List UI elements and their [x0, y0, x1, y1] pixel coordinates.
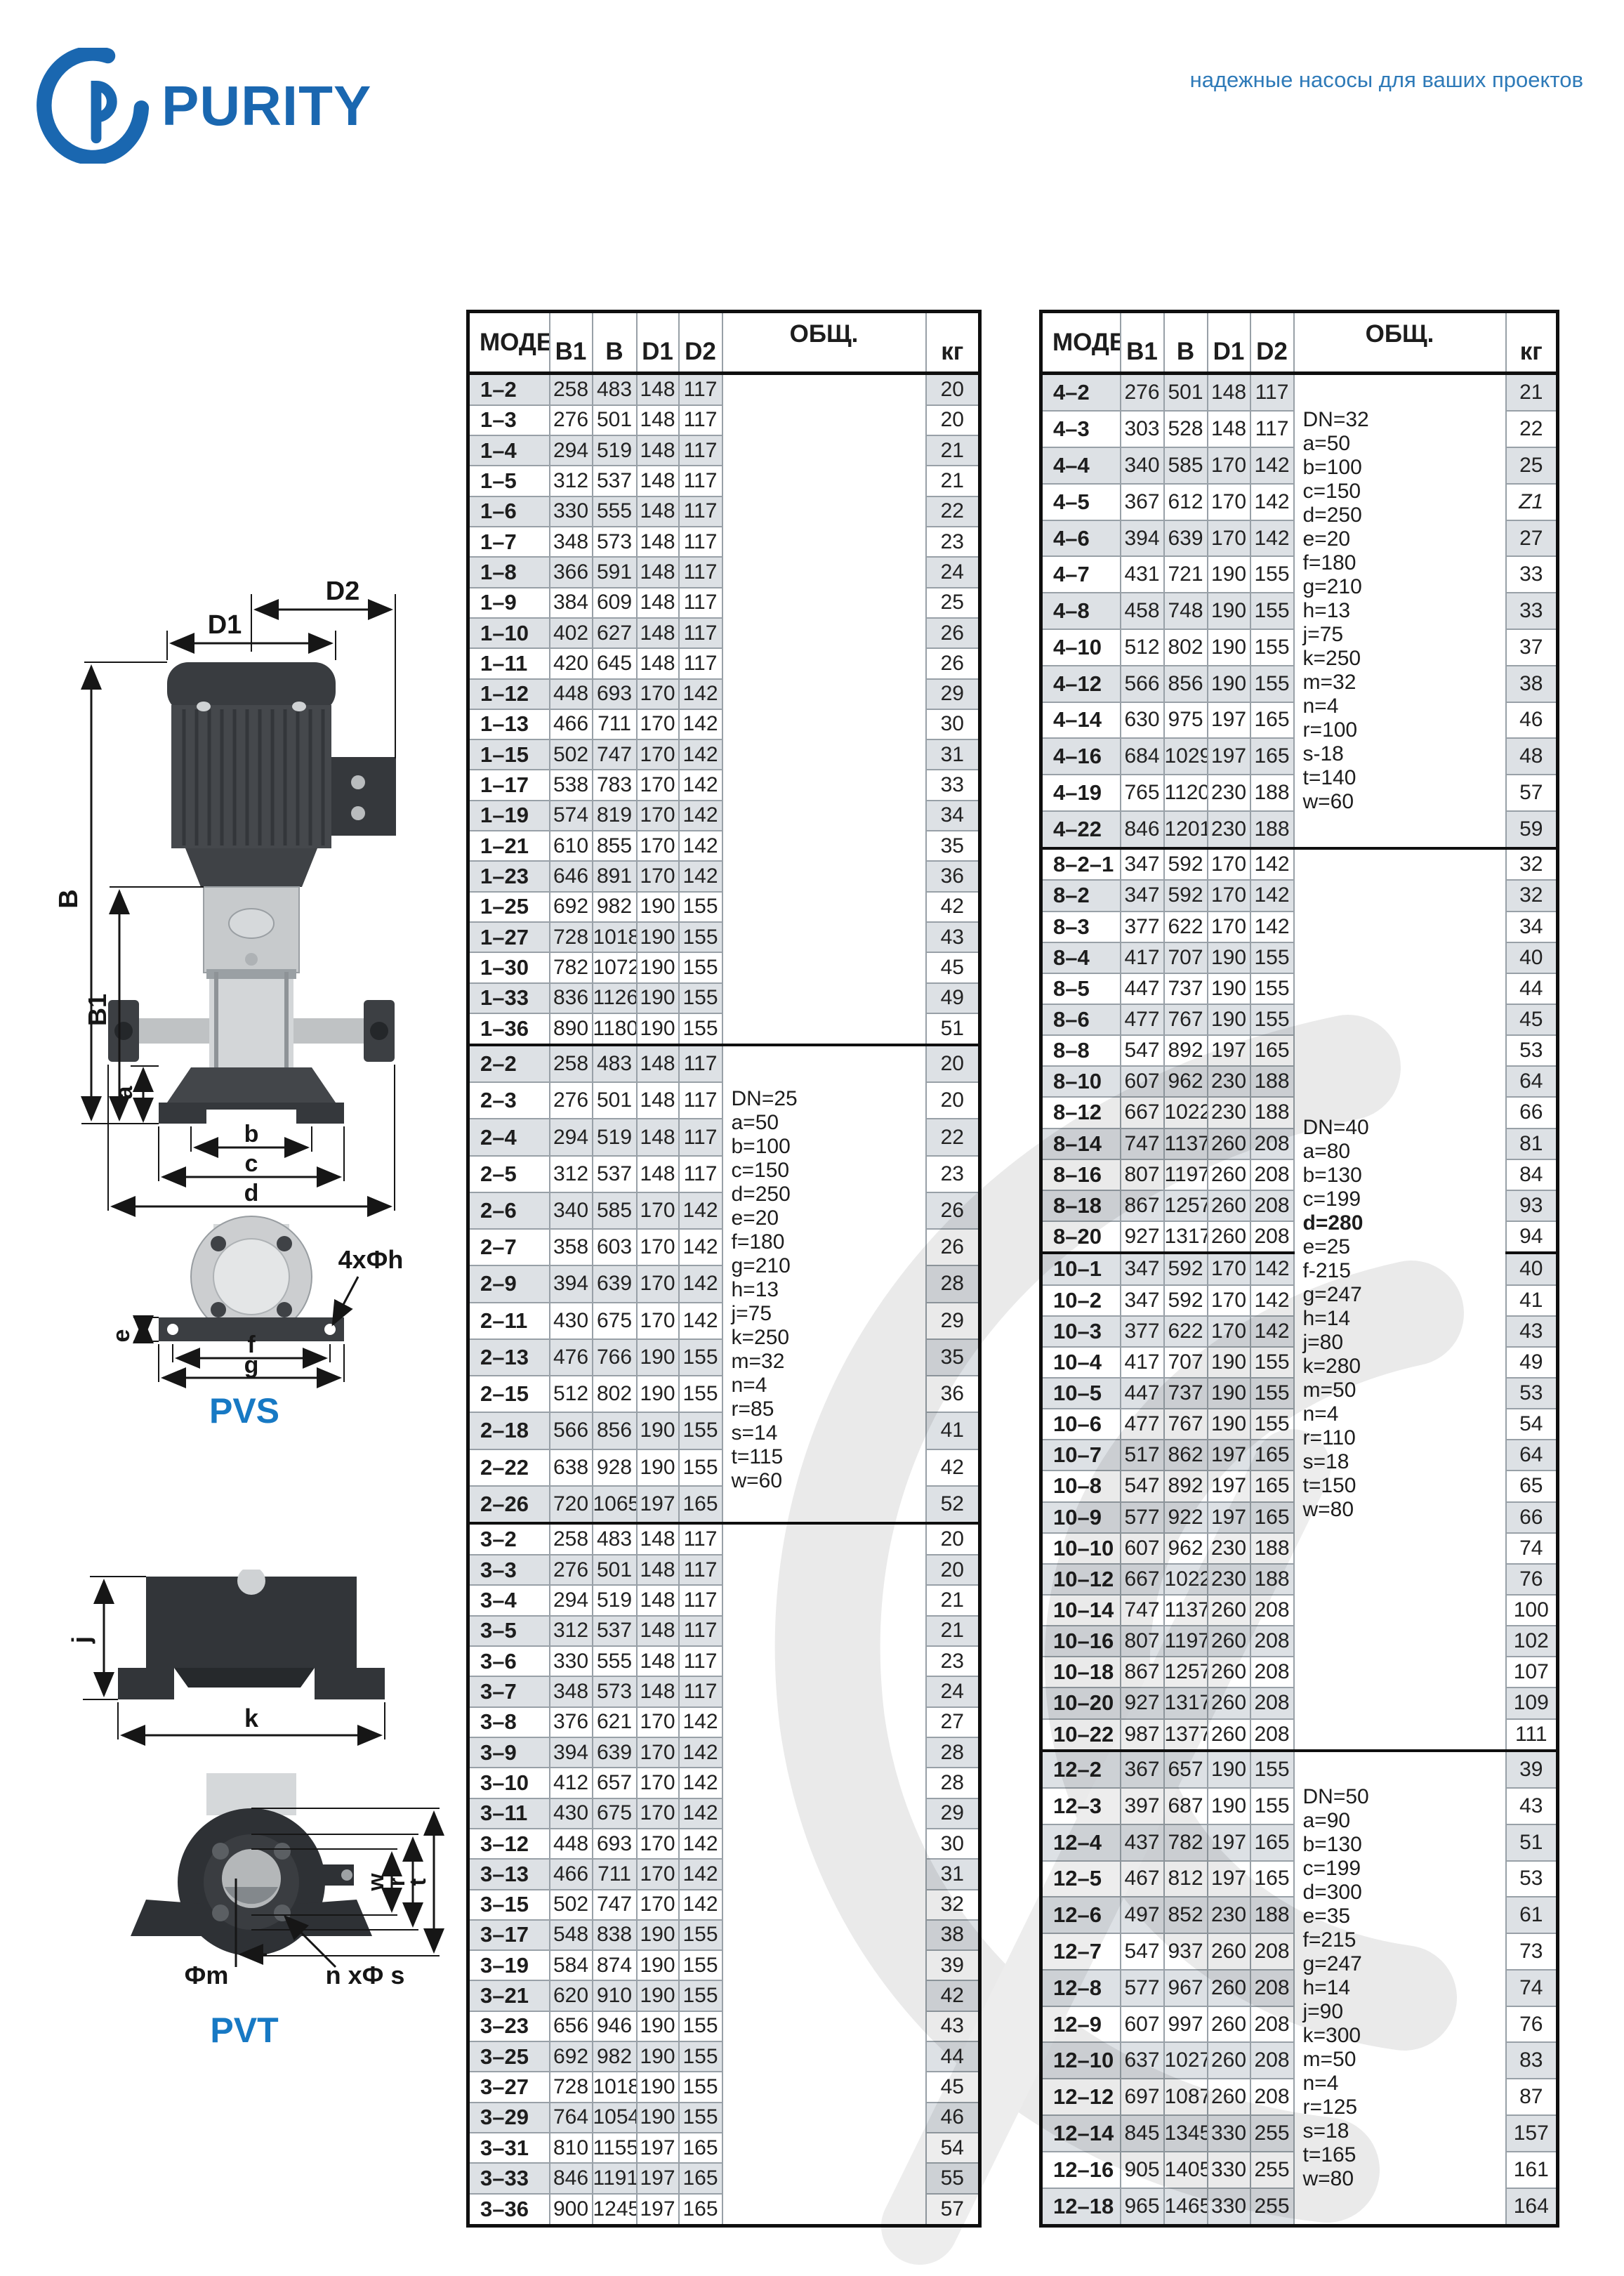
- note-line: t=140: [1303, 766, 1505, 790]
- kg-cell: 76: [1506, 2006, 1558, 2043]
- kg-cell: 45: [926, 952, 980, 982]
- b-cell: 962: [1164, 1066, 1208, 1097]
- b-cell: 910: [593, 1980, 637, 2011]
- kg-cell: 76: [1506, 1564, 1558, 1595]
- b1-cell: 294: [550, 435, 593, 466]
- d1-cell: 170: [1208, 447, 1250, 484]
- kg-cell: 32: [926, 1890, 980, 1920]
- d1-cell: 190: [637, 1920, 679, 1950]
- note-line: j=80: [1303, 1331, 1505, 1355]
- general-dimensions-notes: DN=40a=80b=130c=199d=280e=25f-215g=247h=…: [1294, 848, 1506, 1751]
- kg-cell: 43: [1506, 1788, 1558, 1824]
- b1-cell: 692: [550, 2041, 593, 2072]
- d1-cell: 190: [637, 983, 679, 1013]
- d1-cell: 230: [1208, 1533, 1250, 1564]
- b1-cell: 276: [550, 405, 593, 435]
- b1-cell: 538: [550, 770, 593, 800]
- b1-cell: 900: [550, 2194, 593, 2226]
- b-cell: 852: [1164, 1897, 1208, 1933]
- model-cell: 1–15: [468, 739, 550, 770]
- kg-cell: 93: [1506, 1190, 1558, 1221]
- b-cell: 1345: [1164, 2115, 1208, 2152]
- d1-cell: 170: [637, 1229, 679, 1265]
- b-cell: 675: [593, 1303, 637, 1339]
- kg-cell: 35: [926, 1339, 980, 1376]
- d2-cell: 155: [1250, 1751, 1294, 1788]
- model-cell: 12–5: [1041, 1861, 1121, 1897]
- d2-cell: 208: [1250, 2042, 1294, 2079]
- note-line: n=4: [1303, 695, 1505, 718]
- pvs-caption: PVS: [41, 1390, 448, 1431]
- kg-cell: 22: [1506, 411, 1558, 447]
- note-line: DN=50: [1303, 1785, 1505, 1809]
- b1-cell: 466: [550, 1859, 593, 1889]
- d2-cell: 142: [679, 1229, 722, 1265]
- d1-cell: 260: [1208, 1595, 1250, 1626]
- kg-cell: 29: [926, 1798, 980, 1829]
- d2-cell: 165: [679, 1486, 722, 1524]
- pvs-diagram: D2 D1 B B1 a b c d 4xФh e f g: [41, 581, 448, 1393]
- d1-cell: 190: [1208, 1788, 1250, 1824]
- d1-cell: 190: [637, 892, 679, 922]
- kg-cell: 28: [926, 1768, 980, 1798]
- note-line: f=215: [1303, 1928, 1505, 1952]
- kg-cell: 44: [926, 2041, 980, 2072]
- kg-cell: 26: [926, 1229, 980, 1265]
- d1-cell: 190: [637, 2072, 679, 2102]
- kg-cell: 53: [1506, 1035, 1558, 1066]
- d2-cell: 117: [679, 466, 722, 496]
- b-cell: 1072: [593, 952, 637, 982]
- model-cell: 12–9: [1041, 2006, 1121, 2043]
- b1-cell: 431: [1121, 556, 1164, 593]
- b1-cell: 610: [550, 831, 593, 861]
- b-cell: 519: [593, 1585, 637, 1615]
- d1-cell: 148: [637, 1045, 679, 1083]
- dim-j: j: [67, 1636, 95, 1644]
- b-cell: 591: [593, 557, 637, 587]
- note-line: n=4: [732, 1374, 925, 1397]
- d2-cell: 255: [1250, 2188, 1294, 2226]
- note-line: r=100: [1303, 718, 1505, 742]
- note-line: m=32: [732, 1350, 925, 1374]
- b-cell: 609: [593, 588, 637, 618]
- d2-cell: 208: [1250, 2079, 1294, 2115]
- b1-cell: 846: [1121, 811, 1164, 848]
- b-cell: 1180: [593, 1013, 637, 1044]
- b1-cell: 807: [1121, 1626, 1164, 1657]
- b1-cell: 747: [1121, 1595, 1164, 1626]
- d1-cell: 190: [637, 2103, 679, 2133]
- d2-cell: 142: [679, 679, 722, 709]
- b1-cell: 417: [1121, 942, 1164, 973]
- kg-cell: 42: [926, 1449, 980, 1486]
- b1-cell: 764: [550, 2103, 593, 2133]
- b1-cell: 836: [550, 983, 593, 1013]
- note-line: d=250: [1303, 504, 1505, 527]
- terminal-box: [331, 757, 396, 836]
- model-cell: 3–19: [468, 1950, 550, 1980]
- d1-cell: 148: [637, 557, 679, 587]
- pvt-caption: PVT: [41, 2010, 448, 2051]
- d1-cell: 330: [1208, 2115, 1250, 2152]
- d2-cell: 155: [1250, 1004, 1294, 1035]
- d1-cell: 230: [1208, 1564, 1250, 1595]
- b-cell: 622: [1164, 1316, 1208, 1347]
- b1-cell: 303: [1121, 411, 1164, 447]
- model-cell: 1–33: [468, 983, 550, 1013]
- d2-cell: 155: [1250, 1378, 1294, 1409]
- d1-cell: 148: [637, 1523, 679, 1554]
- model-cell: 1–7: [468, 527, 550, 557]
- note-line: n=4: [1303, 1402, 1505, 1426]
- kg-cell: 26: [926, 1192, 980, 1229]
- b1-cell: 728: [550, 922, 593, 952]
- b-cell: 687: [1164, 1788, 1208, 1824]
- b-cell: 675: [593, 1798, 637, 1829]
- b1-cell: 765: [1121, 775, 1164, 811]
- kg-cell: 49: [926, 983, 980, 1013]
- d2-cell: 117: [679, 496, 722, 527]
- model-cell: 1–12: [468, 679, 550, 709]
- d2-cell: 208: [1250, 1190, 1294, 1221]
- d2-cell: 155: [679, 1339, 722, 1376]
- d1-cell: 170: [637, 1707, 679, 1737]
- kg-cell: 45: [926, 2072, 980, 2102]
- kg-cell: 44: [1506, 973, 1558, 1004]
- model-cell: 3–6: [468, 1646, 550, 1676]
- note-line: s=18: [1303, 2119, 1505, 2143]
- d1-cell: 197: [1208, 1035, 1250, 1066]
- b-cell: 721: [1164, 556, 1208, 593]
- b-cell: 622: [1164, 912, 1208, 942]
- b-cell: 892: [1164, 1035, 1208, 1066]
- d2-cell: 142: [679, 1829, 722, 1859]
- kg-cell: 21: [926, 466, 980, 496]
- note-line: k=300: [1303, 2024, 1505, 2048]
- note-line: s-18: [1303, 742, 1505, 766]
- note-line: k=250: [1303, 647, 1505, 671]
- b-cell: 711: [593, 709, 637, 739]
- model-cell: 8–14: [1041, 1129, 1121, 1159]
- kg-cell: 20: [926, 374, 980, 405]
- note-line: e=20: [1303, 527, 1505, 551]
- kg-cell: 37: [1506, 629, 1558, 666]
- note-line: m=50: [1303, 1379, 1505, 1402]
- b-cell: 501: [593, 1555, 637, 1585]
- table-row: 1–225848314811720: [468, 374, 980, 405]
- d1-cell: 197: [1208, 738, 1250, 775]
- model-cell: 3–15: [468, 1890, 550, 1920]
- kg-cell: 65: [1506, 1471, 1558, 1501]
- b1-cell: 312: [550, 466, 593, 496]
- bracket-foot-right: [315, 1668, 385, 1699]
- b-cell: 1257: [1164, 1190, 1208, 1221]
- d2-cell: 255: [1250, 2115, 1294, 2152]
- b1-cell: 646: [550, 861, 593, 891]
- model-cell: 3–36: [468, 2194, 550, 2226]
- b1-cell: 577: [1121, 1970, 1164, 2006]
- kg-cell: 41: [926, 1412, 980, 1449]
- b1-cell: 377: [1121, 1316, 1164, 1347]
- b-cell: 645: [593, 648, 637, 678]
- d1-cell: 197: [1208, 1824, 1250, 1861]
- b1-cell: 458: [1121, 593, 1164, 629]
- model-cell: 10–10: [1041, 1533, 1121, 1564]
- b-cell: 707: [1164, 1347, 1208, 1378]
- model-cell: 8–4: [1041, 942, 1121, 973]
- model-cell: 3–11: [468, 1798, 550, 1829]
- col-header-model: МОДЕЛЬ: [468, 312, 550, 374]
- header-row: МОДЕЛЬ B1 B D1 D2 ОБЩ. кг: [1041, 312, 1558, 374]
- model-cell: 8–8: [1041, 1035, 1121, 1066]
- b-cell: 997: [1164, 2006, 1208, 2043]
- kg-cell: 20: [926, 1555, 980, 1585]
- kg-cell: 32: [1506, 880, 1558, 911]
- b-cell: 555: [593, 1646, 637, 1676]
- model-cell: 1–30: [468, 952, 550, 982]
- b1-cell: 366: [550, 557, 593, 587]
- d1-cell: 170: [637, 1859, 679, 1889]
- d1-cell: 190: [1208, 1347, 1250, 1378]
- note-line: b=130: [1303, 1833, 1505, 1857]
- kg-cell: 164: [1506, 2188, 1558, 2226]
- d2-cell: 117: [679, 648, 722, 678]
- kg-cell: 22: [926, 1119, 980, 1155]
- dimensions-table-right: МОДЕЛЬ B1 B D1 D2 ОБЩ. кг 4–227650114811…: [1039, 310, 1559, 2228]
- note-line: h=14: [1303, 1976, 1505, 2000]
- d1-cell: 190: [637, 1950, 679, 1980]
- note-line: t=150: [1303, 1474, 1505, 1498]
- note-line: w=80: [1303, 2167, 1505, 2191]
- d1-cell: 148: [637, 1119, 679, 1155]
- col-header-obsh: ОБЩ.: [722, 312, 926, 374]
- b-cell: 483: [593, 1523, 637, 1554]
- b-cell: 1197: [1164, 1626, 1208, 1657]
- kg-cell: 39: [1506, 1751, 1558, 1788]
- d2-cell: 208: [1250, 1970, 1294, 2006]
- b1-cell: 577: [1121, 1502, 1164, 1533]
- kg-cell: 45: [1506, 1004, 1558, 1035]
- d1-cell: 190: [637, 1013, 679, 1044]
- d2-cell: 142: [679, 1798, 722, 1829]
- d2-cell: 155: [679, 2041, 722, 2072]
- d2-cell: 165: [1250, 1824, 1294, 1861]
- d2-cell: 142: [1250, 1316, 1294, 1347]
- b1-cell: 394: [550, 1265, 593, 1302]
- bracket-foot-left: [118, 1668, 174, 1699]
- b-cell: 1022: [1164, 1097, 1208, 1128]
- d2-cell: 155: [679, 1412, 722, 1449]
- b1-cell: 728: [550, 2072, 593, 2102]
- b-cell: 483: [593, 1045, 637, 1083]
- d1-cell: 170: [1208, 1316, 1250, 1347]
- b1-cell: 548: [550, 1920, 593, 1950]
- dim-phi-m: Фm: [185, 1961, 229, 1989]
- kg-cell: 39: [926, 1950, 980, 1980]
- d2-cell: 142: [679, 861, 722, 891]
- b-cell: 573: [593, 527, 637, 557]
- b1-cell: 547: [1121, 1035, 1164, 1066]
- model-cell: 8–6: [1041, 1004, 1121, 1035]
- b1-cell: 512: [1121, 629, 1164, 666]
- kg-cell: 40: [1506, 942, 1558, 973]
- note-line: a=50: [1303, 432, 1505, 456]
- d1-cell: 170: [637, 831, 679, 861]
- b1-cell: 607: [1121, 2006, 1164, 2043]
- d2-cell: 155: [1250, 593, 1294, 629]
- d2-cell: 142: [1250, 912, 1294, 942]
- dim-D2: D2: [326, 581, 360, 606]
- d2-cell: 117: [679, 1082, 722, 1119]
- d1-cell: 170: [637, 739, 679, 770]
- note-line: d=300: [1303, 1881, 1505, 1905]
- b-cell: 1377: [1164, 1719, 1208, 1751]
- d1-cell: 170: [637, 861, 679, 891]
- d2-cell: 155: [679, 1376, 722, 1412]
- note-line: c=150: [732, 1159, 925, 1183]
- b-cell: 1027: [1164, 2042, 1208, 2079]
- d2-cell: 155: [679, 1449, 722, 1486]
- model-cell: 10–5: [1041, 1378, 1121, 1409]
- d2-cell: 142: [1250, 1285, 1294, 1316]
- b-cell: 693: [593, 1829, 637, 1859]
- kg-cell: 31: [926, 1859, 980, 1889]
- kg-cell: 21: [1506, 374, 1558, 412]
- d2-cell: 165: [679, 2194, 722, 2226]
- d1-cell: 170: [637, 679, 679, 709]
- d2-cell: 117: [679, 1585, 722, 1615]
- kg-cell: 33: [1506, 556, 1558, 593]
- kg-cell: 27: [926, 1707, 980, 1737]
- b-cell: 501: [593, 405, 637, 435]
- b1-cell: 574: [550, 801, 593, 831]
- kg-cell: 36: [926, 1376, 980, 1412]
- b-cell: 1029: [1164, 738, 1208, 775]
- d2-cell: 208: [1250, 1595, 1294, 1626]
- d1-cell: 197: [1208, 1471, 1250, 1501]
- model-cell: 12–12: [1041, 2079, 1121, 2115]
- d2-cell: 155: [1250, 973, 1294, 1004]
- b1-cell: 348: [550, 527, 593, 557]
- kg-cell: 64: [1506, 1440, 1558, 1471]
- d1-cell: 170: [637, 770, 679, 800]
- kg-cell: 74: [1506, 1533, 1558, 1564]
- b1-cell: 347: [1121, 1253, 1164, 1284]
- d1-cell: 190: [637, 1449, 679, 1486]
- b1-cell: 402: [550, 618, 593, 648]
- d1-cell: 170: [1208, 848, 1250, 880]
- b-cell: 967: [1164, 1970, 1208, 2006]
- kg-cell: 107: [1506, 1657, 1558, 1688]
- note-line: f=180: [732, 1230, 925, 1254]
- kg-cell: 53: [1506, 1378, 1558, 1409]
- note-line: h=13: [732, 1278, 925, 1302]
- d2-cell: 117: [679, 1646, 722, 1676]
- model-cell: 2–22: [468, 1449, 550, 1486]
- kg-cell: 64: [1506, 1066, 1558, 1097]
- model-cell: 1–27: [468, 922, 550, 952]
- d1-cell: 170: [637, 1303, 679, 1339]
- model-cell: 8–10: [1041, 1066, 1121, 1097]
- d2-cell: 155: [679, 1920, 722, 1950]
- d1-cell: 260: [1208, 1688, 1250, 1718]
- kg-cell: 43: [1506, 1316, 1558, 1347]
- b-cell: 1465: [1164, 2188, 1208, 2226]
- b-cell: 707: [1164, 942, 1208, 973]
- note-line: g=247: [1303, 1952, 1505, 1976]
- model-cell: 10–14: [1041, 1595, 1121, 1626]
- b1-cell: 367: [1121, 1751, 1164, 1788]
- note-line: c=199: [1303, 1188, 1505, 1211]
- d1-cell: 170: [637, 1829, 679, 1859]
- model-cell: 10–1: [1041, 1253, 1121, 1284]
- b1-cell: 258: [550, 1523, 593, 1554]
- b-cell: 862: [1164, 1440, 1208, 1471]
- b-cell: 711: [593, 1859, 637, 1889]
- d2-cell: 142: [679, 709, 722, 739]
- model-cell: 2–2: [468, 1045, 550, 1083]
- model-cell: 3–13: [468, 1859, 550, 1889]
- d2-cell: 155: [1250, 1788, 1294, 1824]
- d1-cell: 148: [1208, 374, 1250, 412]
- pump-base: [167, 1067, 336, 1103]
- b-cell: 639: [593, 1265, 637, 1302]
- b-cell: 737: [1164, 973, 1208, 1004]
- b1-cell: 965: [1121, 2188, 1164, 2226]
- b-cell: 627: [593, 618, 637, 648]
- dim-n-phi-s: n xФ s: [326, 1961, 405, 1989]
- b1-cell: 417: [1121, 1347, 1164, 1378]
- b-cell: 585: [1164, 447, 1208, 484]
- model-cell: 10–20: [1041, 1688, 1121, 1718]
- header-row: МОДЕЛЬ B1 B D1 D2 ОБЩ. кг: [468, 312, 980, 374]
- tagline: надежные насосы для ваших проектов: [1190, 67, 1583, 93]
- kg-cell: 102: [1506, 1626, 1558, 1657]
- d1-cell: 190: [1208, 593, 1250, 629]
- d2-cell: 165: [679, 2163, 722, 2193]
- b1-cell: 294: [550, 1585, 593, 1615]
- kg-cell: 41: [1506, 1285, 1558, 1316]
- col-header-d2: D2: [679, 312, 722, 374]
- b-cell: 537: [593, 1616, 637, 1646]
- kg-cell: 30: [926, 709, 980, 739]
- kg-cell: 57: [1506, 775, 1558, 811]
- b1-cell: 477: [1121, 1004, 1164, 1035]
- model-cell: 3–25: [468, 2041, 550, 2072]
- d1-cell: 260: [1208, 1933, 1250, 1970]
- note-line: m=50: [1303, 2048, 1505, 2072]
- model-cell: 1–19: [468, 801, 550, 831]
- b-cell: 1405: [1164, 2152, 1208, 2188]
- d2-cell: 142: [679, 1192, 722, 1229]
- d2-cell: 155: [679, 2011, 722, 2041]
- b-cell: 855: [593, 831, 637, 861]
- dim-4xPhi-h: 4xФh: [338, 1245, 404, 1274]
- b1-cell: 667: [1121, 1097, 1164, 1128]
- b1-cell: 437: [1121, 1824, 1164, 1861]
- discharge-pipe: [293, 1018, 364, 1044]
- d2-cell: 117: [679, 435, 722, 466]
- d1-cell: 230: [1208, 1066, 1250, 1097]
- kg-cell: 20: [926, 1523, 980, 1554]
- model-cell: 3–23: [468, 2011, 550, 2041]
- b1-cell: 566: [1121, 666, 1164, 702]
- note-line: c=150: [1303, 480, 1505, 504]
- model-cell: 4–4: [1041, 447, 1121, 484]
- b1-cell: 448: [550, 1829, 593, 1859]
- model-cell: 1–2: [468, 374, 550, 405]
